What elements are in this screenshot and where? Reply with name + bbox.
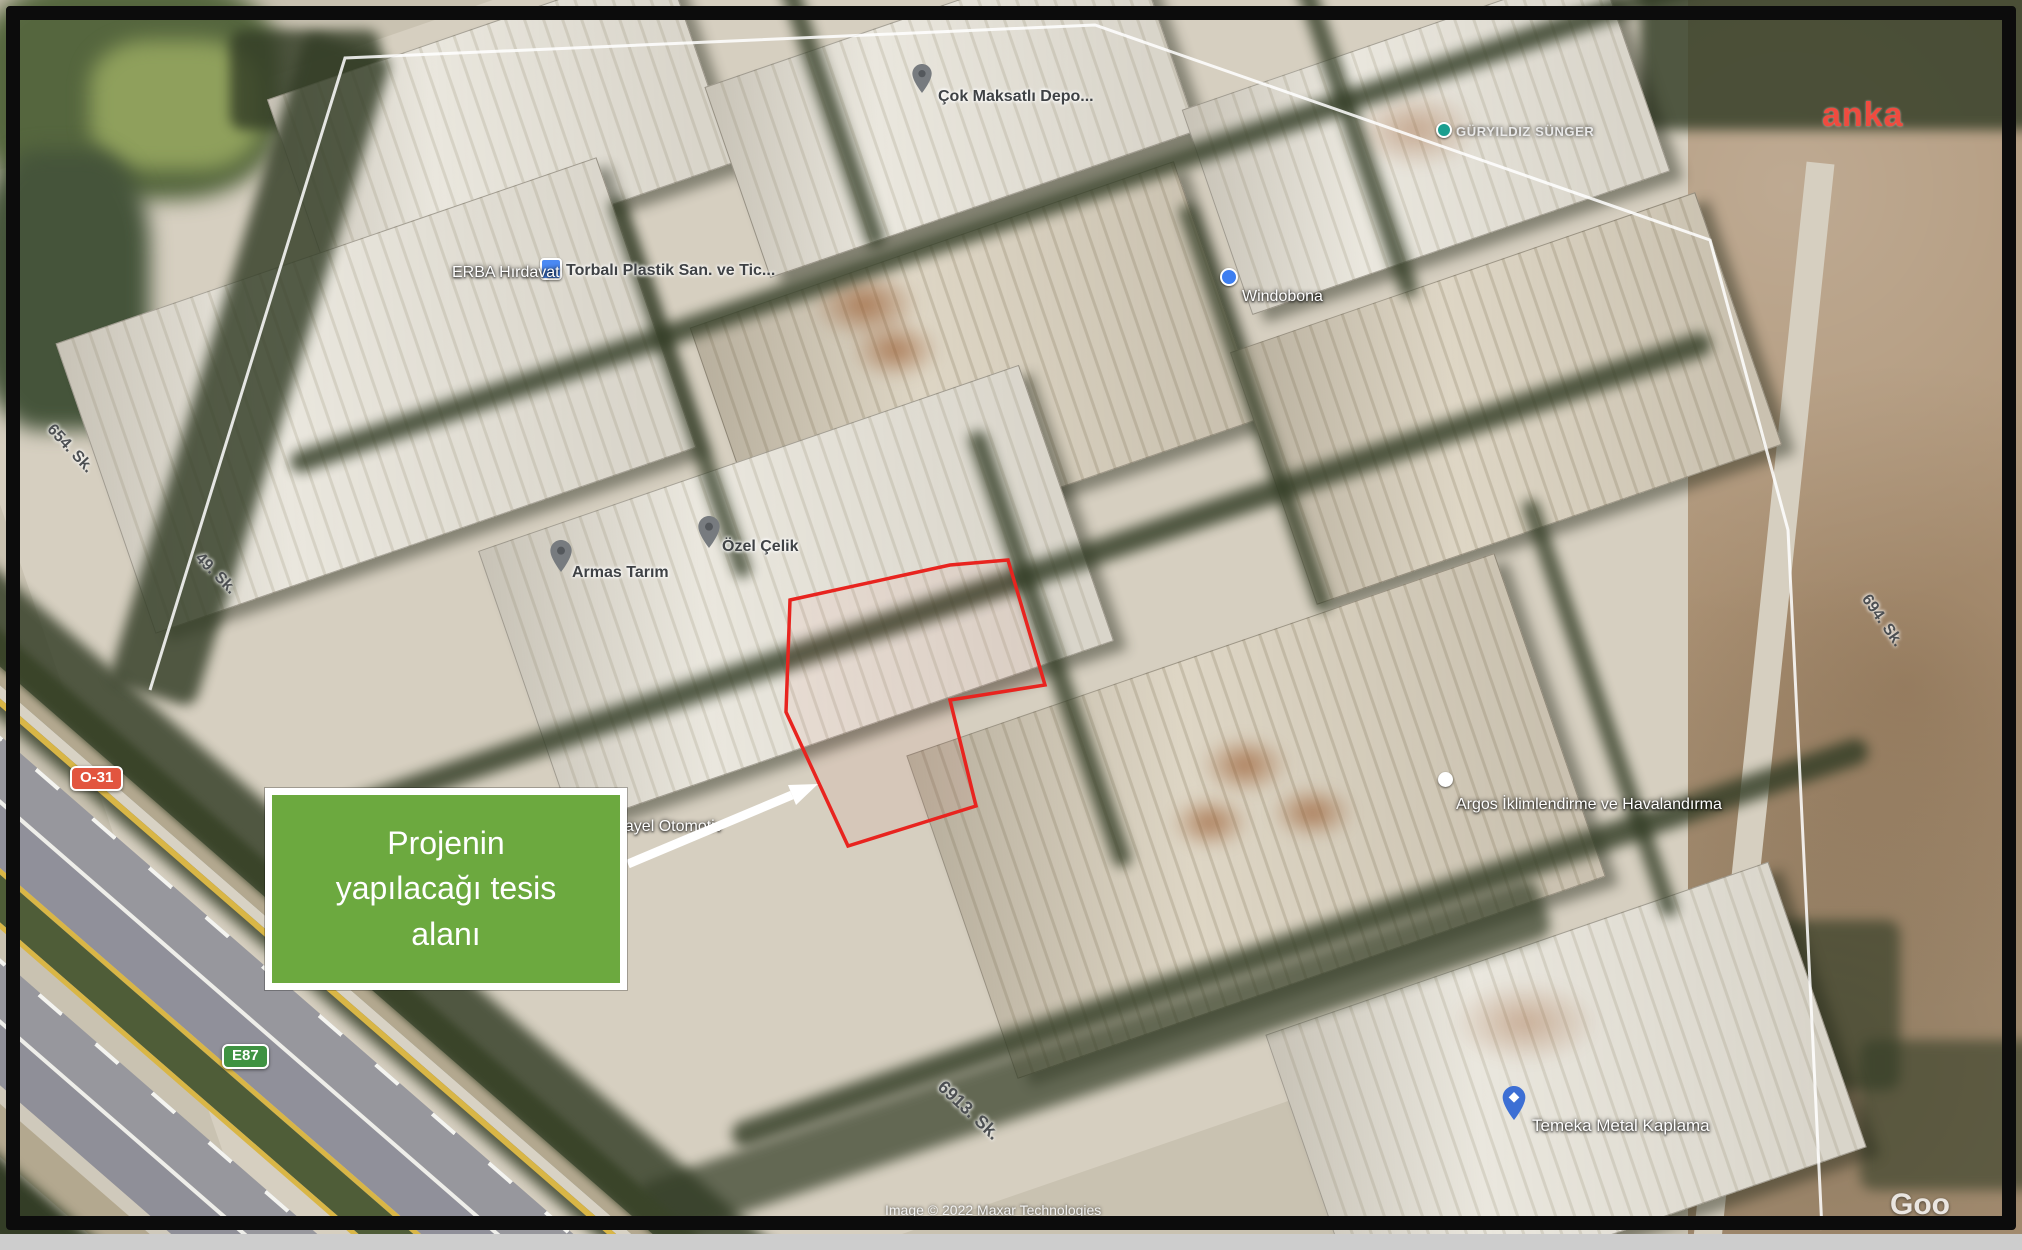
poi-label: Armas Tarım [572,564,669,582]
map-pin-icon [550,540,572,572]
poi-label: GÜRYILDIZ SÜNGER [1456,124,1594,139]
tree-row [1860,1040,2022,1190]
route-badge-e87: E87 [222,1044,269,1069]
route-badge-o31: O-31 [70,766,123,791]
google-watermark-partial: Goo [1890,1188,1950,1222]
poi-label: Windobona [1242,288,1323,306]
anka-watermark: anka [1822,96,1904,135]
blue-dot-pin-icon [1220,268,1238,286]
poi-label: Özel Çelik [722,538,798,556]
map-pin-icon [1502,1086,1526,1120]
roof-stain [850,320,940,380]
poi-label: Torbalı Plastik San. ve Tic... [566,262,775,280]
annotated-satellite-figure: Çok Maksatlı Depo... GÜRYILDIZ SÜNGER ER… [0,0,2022,1250]
project-site-label-box: Projenin yapılacağı tesis alanı [265,788,627,990]
poi-label: ERBA Hırdavat [452,264,560,282]
roof-stain [1270,785,1355,840]
map-pin-icon [912,64,932,93]
roof-stain [1170,795,1250,850]
imagery-attribution: Image © 2022 Maxar Technologies [885,1202,1101,1218]
white-dot-pin-icon [1438,772,1453,787]
poi-label: Argos İklimlendirme ve Havalandırma [1456,796,1722,814]
poi-label: Temeka Metal Kaplama [1532,1116,1710,1136]
teal-dot-pin-icon [1436,122,1452,138]
page-bottom-strip [0,1234,2022,1250]
label-box-line: Projenin [387,821,504,866]
satellite-map: Çok Maksatlı Depo... GÜRYILDIZ SÜNGER ER… [0,0,2022,1250]
map-pin-icon [698,516,720,548]
label-box-line: yapılacağı tesis [336,866,557,911]
label-box-line: alanı [411,912,480,957]
poi-label: Çok Maksatlı Depo... [938,88,1094,106]
roof-stain [1450,980,1600,1065]
roof-stain [1200,735,1290,795]
